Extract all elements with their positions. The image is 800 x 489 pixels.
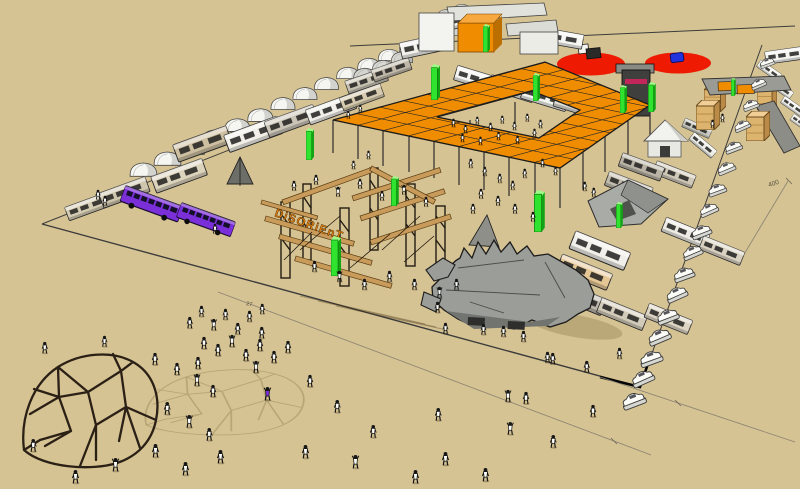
dim-label-27: 27 <box>246 301 253 308</box>
green-pillar <box>731 78 736 96</box>
green-pillar <box>648 82 656 112</box>
green-pillar <box>331 236 341 276</box>
pad2-vehicle <box>670 52 684 63</box>
green-pillar <box>533 73 540 101</box>
green-pillar <box>483 24 490 52</box>
scene-canvas[interactable]: DiSORiEnT 27 400 <box>0 0 800 489</box>
green-pillar <box>534 190 545 232</box>
green-pillar <box>306 128 314 160</box>
wood-crate <box>696 100 720 130</box>
green-pillar <box>391 176 399 206</box>
green-pillar <box>431 64 440 100</box>
3d-viewport[interactable]: DiSORiEnT 27 400 <box>0 0 800 489</box>
green-pillar <box>620 85 627 113</box>
green-pillar <box>616 202 623 228</box>
